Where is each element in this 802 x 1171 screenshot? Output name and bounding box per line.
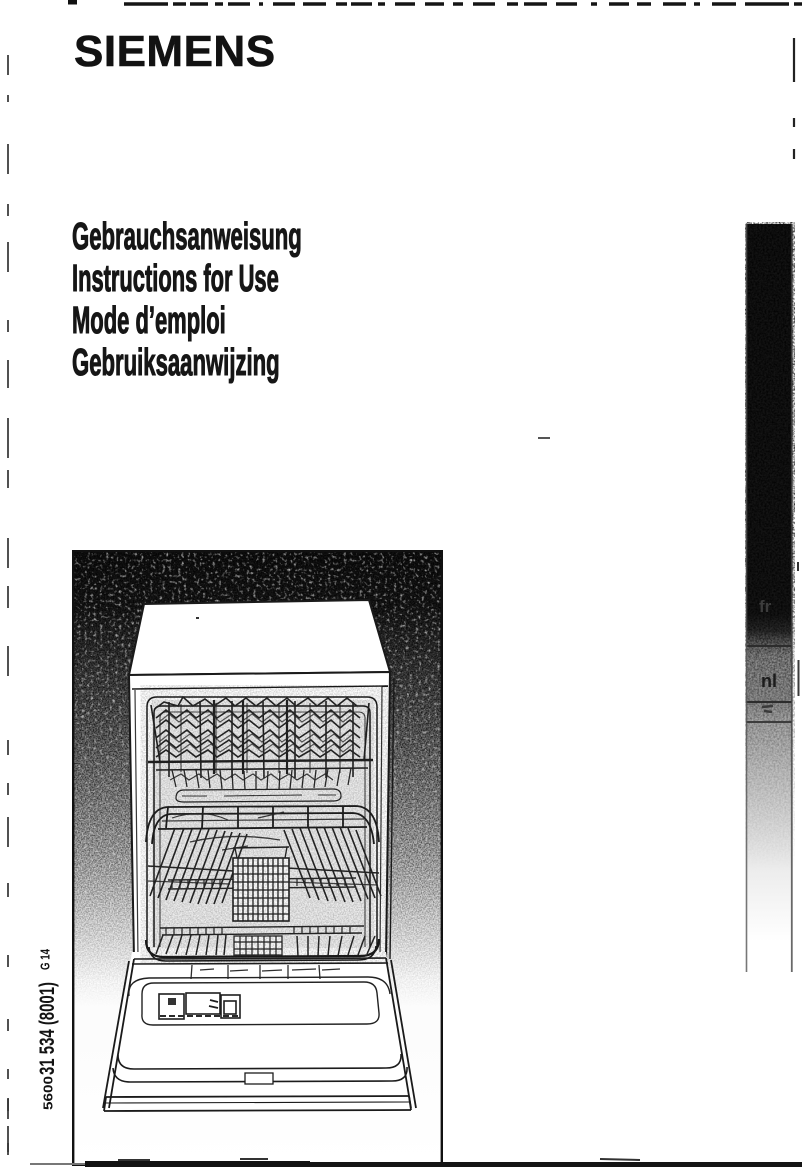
svg-text:5600: 5600 [41, 1076, 56, 1110]
svg-text:31 534 (8001): 31 534 (8001) [35, 982, 59, 1075]
svg-text:G 14: G 14 [38, 948, 53, 970]
